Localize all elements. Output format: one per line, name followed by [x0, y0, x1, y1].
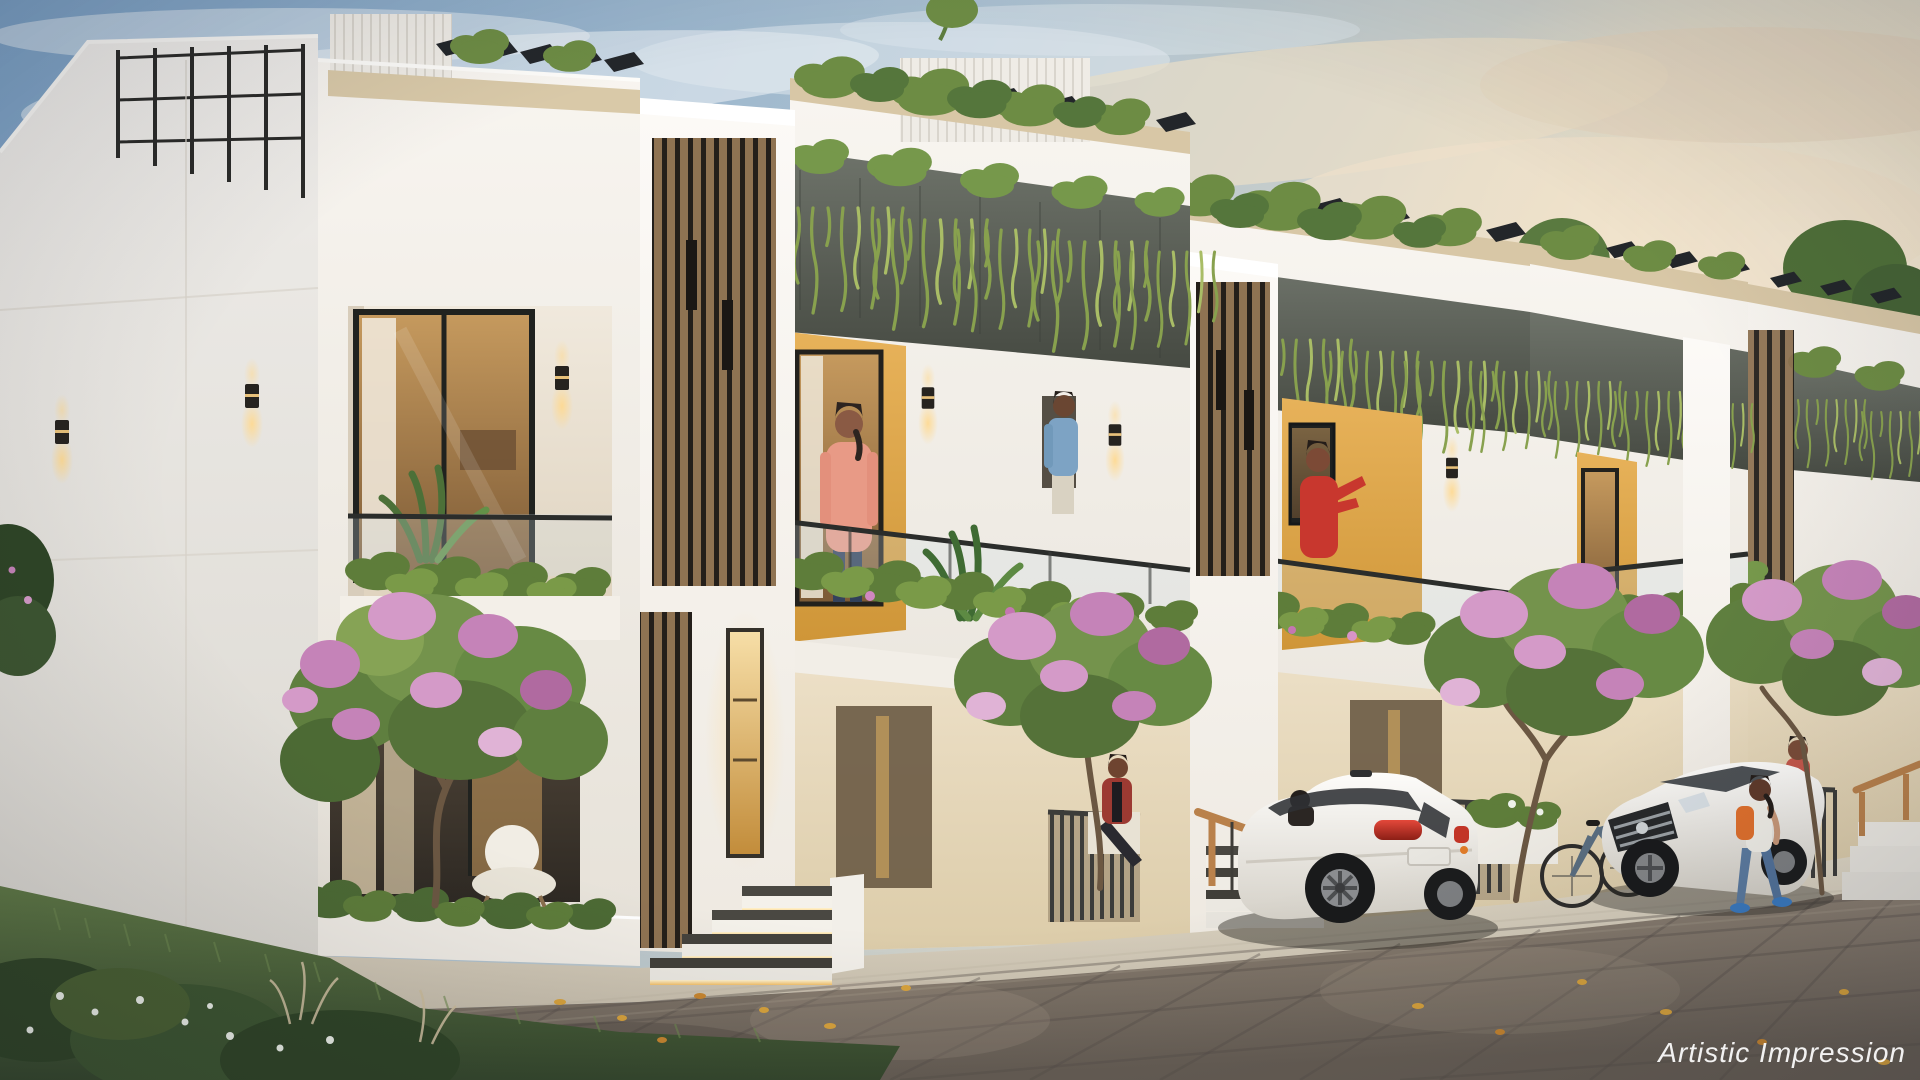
artistic-impression-render: Artistic Impression: [0, 0, 1920, 1080]
artistic-impression-watermark: Artistic Impression: [1656, 1037, 1906, 1068]
townhouse-render-scene: Artistic Impression: [0, 0, 1920, 1080]
vignette: [0, 0, 1920, 1080]
